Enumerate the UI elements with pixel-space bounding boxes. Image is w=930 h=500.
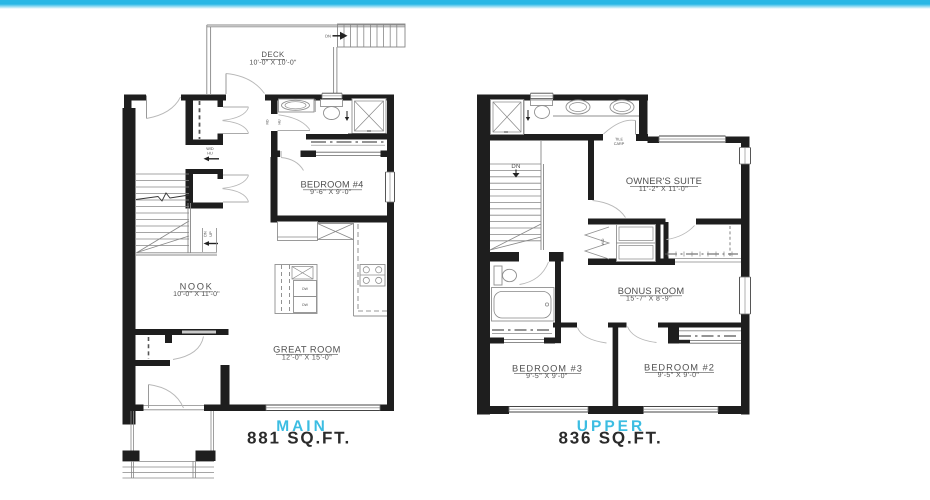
- svg-text:DN: DN: [511, 163, 520, 170]
- svg-text:DW: DW: [302, 303, 309, 307]
- svg-text:881 SQ.FT.: 881 SQ.FT.: [247, 429, 351, 448]
- svg-text:GREAT ROOM: GREAT ROOM: [273, 345, 341, 355]
- svg-text:BEDROOM #3: BEDROOM #3: [512, 364, 583, 374]
- svg-text:15'-7" X 8'-9": 15'-7" X 8'-9": [626, 296, 672, 303]
- svg-text:BONUS ROOM: BONUS ROOM: [618, 286, 685, 296]
- svg-text:9'-6" X 9'-0": 9'-6" X 9'-0": [310, 189, 352, 196]
- svg-text:9'-5" X 9'-0": 9'-5" X 9'-0": [526, 373, 568, 380]
- svg-text:11'-2" X 11'-0": 11'-2" X 11'-0": [639, 186, 688, 193]
- svg-text:BEDROOM #4: BEDROOM #4: [301, 180, 364, 190]
- svg-text:DECK: DECK: [261, 50, 285, 59]
- svg-text:HU: HU: [278, 119, 282, 125]
- svg-text:W/D: W/D: [601, 238, 605, 245]
- svg-text:DN: DN: [204, 231, 208, 237]
- svg-text:10'-0" X 11'-0": 10'-0" X 11'-0": [173, 291, 220, 298]
- svg-text:UP: UP: [209, 231, 213, 237]
- svg-text:12'-0" X 15'-0": 12'-0" X 15'-0": [282, 355, 332, 362]
- svg-text:CARP: CARP: [614, 142, 625, 146]
- svg-text:NOOK: NOOK: [180, 282, 214, 292]
- svg-text:BEDROOM #2: BEDROOM #2: [644, 363, 715, 373]
- svg-text:HU: HU: [207, 152, 213, 156]
- svg-text:RD: RD: [266, 119, 270, 125]
- svg-text:DW: DW: [302, 287, 309, 291]
- svg-text:TILE: TILE: [615, 138, 623, 142]
- svg-text:W/D: W/D: [206, 147, 214, 151]
- svg-text:10'-0" X 10'-0": 10'-0" X 10'-0": [249, 60, 297, 67]
- svg-text:9'-5" X 9'-0": 9'-5" X 9'-0": [658, 372, 700, 379]
- svg-text:DN: DN: [325, 34, 331, 39]
- svg-text:836 SQ.FT.: 836 SQ.FT.: [559, 429, 663, 448]
- svg-text:OWNER'S SUITE: OWNER'S SUITE: [626, 176, 702, 186]
